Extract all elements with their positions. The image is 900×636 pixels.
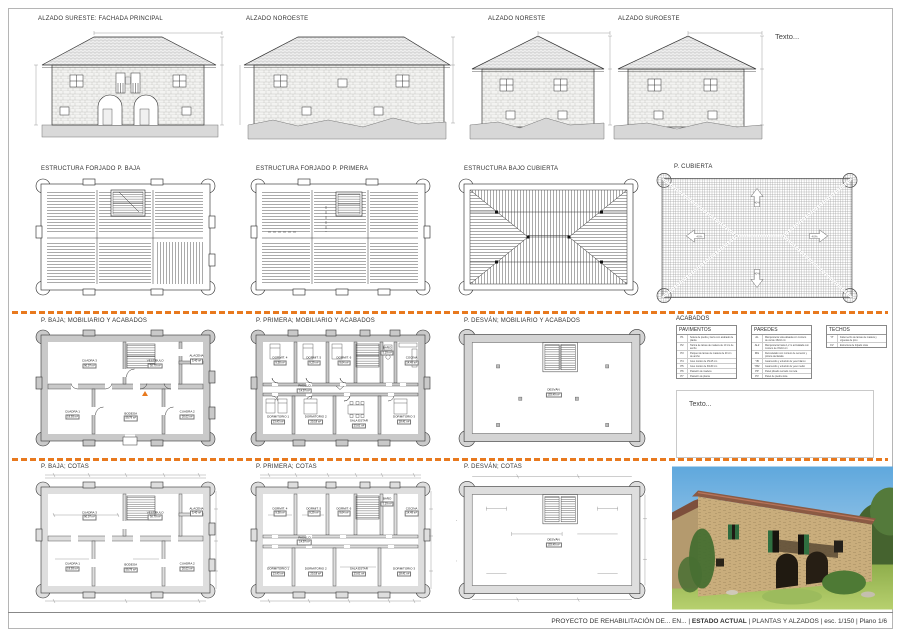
elevation-sureste-drawing — [30, 24, 228, 146]
phase-label: ESTADO ACTUAL — [692, 618, 747, 625]
room-label: ALACENA5,40 m² — [190, 507, 204, 516]
structure-title: ESTRUCTURA BAJO CUBIERTA — [464, 166, 646, 172]
title-block: PROYECTO DE REHABILITACIÓN DE... EN... |… — [8, 612, 893, 629]
plan-title: P. BAJA; COTAS — [41, 464, 221, 470]
room-label: BAÑO5,19 m² — [381, 498, 394, 507]
finish-code: AL — [752, 335, 763, 342]
plan-baja-cotas-drawing — [33, 472, 218, 604]
finish-description: Falso techo de lamas de madera y vigueta… — [838, 335, 886, 342]
site-photo — [672, 466, 893, 610]
finish-description: Gres rústico de 15x15 cm — [688, 359, 736, 363]
slope-label: 40% — [754, 201, 760, 205]
structure-bajo-cubierta-panel: ESTRUCTURA BAJO CUBIERTA — [456, 166, 646, 300]
finishes-table: PAREDESALMampostería vista alisada con m… — [751, 325, 812, 379]
finish-code: P7 — [677, 374, 688, 378]
notes-box: Texto... — [676, 390, 874, 458]
finish-code: P2 — [677, 343, 688, 350]
finish-code: YB2 — [752, 364, 763, 368]
finish-row: FVEstructura de forjado vista — [827, 343, 886, 347]
finish-row: ALMampostería vista alisada con mortero … — [752, 335, 811, 343]
room-label: PASILLO14,97 m² — [297, 385, 312, 394]
finishes-table-title: PAVIMENTOS — [677, 326, 736, 335]
room-label: CUADRA 220,02 m² — [180, 563, 195, 572]
finish-row: PVPanel de piedra vista — [752, 374, 811, 378]
plan-title: P. DESVÁN; MOBILIARIO Y ACABADOS — [464, 318, 651, 324]
room-label: BODEGA59,79 m² — [123, 412, 138, 421]
finishes-table: TECHOSYTFalso techo de lamas de madera y… — [826, 325, 887, 348]
finishes-table-title: PAREDES — [752, 326, 811, 335]
plan-primera-mobiliario-drawing — [248, 326, 433, 450]
finish-code: P4 — [677, 359, 688, 363]
finish-row: P1Solera de piedra y tierra con acabado … — [677, 335, 736, 343]
room-label: SALA ESTAR23,61 m² — [350, 568, 368, 577]
structure-forjado-baja-drawing — [33, 174, 218, 300]
notes-text-top: Texto... — [775, 32, 799, 41]
slope-label: 40% — [696, 234, 702, 238]
room-label: SALA ESTAR23,61 m² — [350, 419, 368, 428]
room-label: DORMITORIO 113,43 m² — [267, 416, 289, 425]
room-label: BODEGA59,79 m² — [123, 564, 138, 573]
finish-code: P1 — [677, 335, 688, 342]
finish-code: P6 — [677, 369, 688, 373]
structure-title: P. CUBIERTA — [674, 164, 862, 170]
scale-label: esc. 1/150 — [824, 618, 854, 625]
finish-code: MG — [752, 351, 763, 358]
orange-separator — [12, 311, 888, 314]
room-label: DORMIT. 69,64 m² — [336, 356, 351, 365]
room-label: DORMIT. 69,64 m² — [336, 507, 351, 516]
finish-description: Gres rústico de 30x30 cm — [688, 364, 736, 368]
plan-title: P. PRIMERA; MOBILIARIO Y ACABADOS — [256, 318, 436, 324]
room-label: DORMITORIO 318,41 m² — [393, 416, 415, 425]
structure-title: ESTRUCTURA FORJADO P. PRIMERA — [256, 166, 436, 172]
content-label: PLANTAS Y ALZADOS — [752, 618, 819, 625]
finish-row: P2Tarima de lamas de madera de 10 cm de … — [677, 343, 736, 351]
plan-baja-mobiliario-drawing — [33, 326, 218, 450]
finish-row: AL2Mampostería hasta 1,2 m acristalada c… — [752, 343, 811, 351]
finish-description: Panel plisado cerrado con tela — [763, 369, 811, 373]
elevation-noroeste-drawing — [238, 24, 456, 146]
finish-description: Parquet de lamas de madera de 20 cm de a… — [688, 351, 736, 358]
plan-title: P. PRIMERA; COTAS — [256, 464, 436, 470]
acabados-title: ACABADOS — [676, 316, 882, 322]
finish-tables: PAVIMENTOSP1Solera de piedra y tierra co… — [676, 325, 882, 379]
room-label: COCINA14,49 m² — [404, 507, 419, 516]
elevation-title: ALZADO SURESTE: FACHADA PRINCIPAL — [38, 16, 230, 22]
site-photo-image — [672, 466, 893, 610]
finish-description: Estructura de forjado vista — [838, 343, 886, 347]
room-label: VESTÍBULO30,79 m² — [147, 360, 164, 369]
sheet-number: Plano 1/6 — [860, 618, 887, 625]
finish-description: Tarima de lamas de madera de 10 cm de an… — [688, 343, 736, 350]
roof-plan-drawing: 40% 40% 40% 40% — [656, 172, 858, 304]
structure-bajo-cubierta-drawing — [456, 174, 641, 300]
finish-description: Remodelado con mortero de cemento y pint… — [763, 351, 811, 358]
finish-row: YTFalso techo de lamas de madera y vigue… — [827, 335, 886, 343]
finish-code: PP — [752, 369, 763, 373]
finish-code: YB — [752, 359, 763, 363]
plan-primera-cotas-panel: P. PRIMERA; COTAS — [248, 464, 436, 604]
notes-text-box: Texto... — [689, 401, 873, 408]
finish-code: P5 — [677, 364, 688, 368]
finishes-table-title: TECHOS — [827, 326, 886, 335]
finish-description: Pastelón de madera — [688, 369, 736, 373]
finish-description: Mampostería vista alisada con mortero de… — [763, 335, 811, 342]
finish-code: P3 — [677, 351, 688, 358]
room-label: DORMITORIO 113,43 m² — [267, 568, 289, 577]
finish-code: PV — [752, 374, 763, 378]
room-label: CUADRA 119,93 m² — [65, 411, 80, 420]
structure-title: ESTRUCTURA FORJADO P. BAJA — [41, 166, 221, 172]
slope-label: 40% — [754, 271, 760, 275]
room-label: PASILLO14,97 m² — [297, 536, 312, 545]
room-label: DESVÁN153,49 m² — [545, 388, 561, 397]
room-label: DORMITORIO 220,18 m² — [305, 568, 327, 577]
plan-baja-cotas-panel: P. BAJA; COTAS — [33, 464, 221, 604]
acabados-panel: ACABADOS PAVIMENTOSP1Solera de piedra y … — [676, 316, 882, 379]
finish-description: Pastelón de planta — [688, 374, 736, 378]
elevation-title: ALZADO SUROESTE — [618, 16, 772, 22]
room-label: DORMIT. 59,29 m² — [306, 356, 321, 365]
room-label: DORMITORIO 318,41 m² — [393, 568, 415, 577]
finish-description: Panel de piedra vista — [763, 374, 811, 378]
elevation-sureste-panel: ALZADO SURESTE: FACHADA PRINCIPAL — [30, 16, 230, 146]
structure-forjado-primera-drawing — [248, 174, 433, 300]
plan-desvan-mobiliario-panel: P. DESVÁN; MOBILIARIO Y ACABADOS DESVÁN1… — [456, 318, 651, 450]
room-label: DORMIT. 49,38 m² — [273, 356, 288, 365]
finish-description: Guarnecido y enlucido de yeso medio — [763, 364, 811, 368]
structure-forjado-baja-panel: ESTRUCTURA FORJADO P. BAJA — [33, 166, 221, 300]
finish-code: AL2 — [752, 343, 763, 350]
room-label: ALACENA5,40 m² — [190, 355, 204, 364]
structure-forjado-primera-panel: ESTRUCTURA FORJADO P. PRIMERA — [248, 166, 436, 300]
orange-separator — [12, 458, 888, 461]
finish-description: Solera de piedra y tierra con acabado de… — [688, 335, 736, 342]
room-label: CUADRA 220,02 m² — [180, 411, 195, 420]
room-label: DORMIT. 59,29 m² — [306, 507, 321, 516]
finish-description: Mampostería hasta 1,2 m acristalada con … — [763, 343, 811, 350]
plan-baja-mobiliario-panel: P. BAJA; MOBILIARIO Y ACABADOS — [33, 318, 221, 450]
slope-label: 40% — [812, 234, 818, 238]
plan-desvan-cotas-panel: P. DESVÁN; COTAS DESVÁN153,49 m² — [456, 464, 651, 604]
drawing-sheet: ALZADO SURESTE: FACHADA PRINCIPAL ALZADO… — [0, 0, 900, 636]
elevation-title: ALZADO NOROESTE — [246, 16, 458, 22]
elevation-noroeste-panel: ALZADO NOROESTE — [238, 16, 458, 146]
plan-primera-mobiliario-panel: P. PRIMERA; MOBILIARIO Y ACABADOS — [248, 318, 436, 450]
finish-row: P7Pastelón de planta — [677, 374, 736, 378]
room-label: CUADRA 390,07 m² — [82, 360, 97, 369]
room-label: BAÑO5,19 m² — [381, 346, 394, 355]
plan-title: P. BAJA; MOBILIARIO Y ACABADOS — [41, 318, 221, 324]
finishes-table: PAVIMENTOSP1Solera de piedra y tierra co… — [676, 325, 737, 379]
elevation-noreste-drawing — [458, 24, 618, 146]
finish-row: MGRemodelado con mortero de cemento y pi… — [752, 351, 811, 359]
room-label: DORMIT. 49,38 m² — [273, 507, 288, 516]
room-label: DORMITORIO 220,18 m² — [305, 416, 327, 425]
room-label: DESVÁN153,49 m² — [545, 539, 561, 548]
plan-title: P. DESVÁN; COTAS — [464, 464, 651, 470]
finish-description: Guarnecido y enlucido de yeso blanco — [763, 359, 811, 363]
elevation-noreste-panel: ALZADO NORESTE — [458, 16, 620, 146]
finish-code: YT — [827, 335, 838, 342]
room-label: VESTÍBULO30,79 m² — [147, 511, 164, 520]
project-title: PROYECTO DE REHABILITACIÓN DE... EN... — [551, 618, 686, 625]
elevation-suroeste-drawing — [602, 24, 770, 146]
finish-code: FV — [827, 343, 838, 347]
elevation-title: ALZADO NORESTE — [488, 16, 620, 22]
room-label: CUADRA 119,93 m² — [65, 563, 80, 572]
room-label: CUADRA 390,07 m² — [82, 511, 97, 520]
room-label: COCINA14,49 m² — [404, 356, 419, 365]
elevation-suroeste-panel: ALZADO SUROESTE — [602, 16, 772, 146]
plan-primera-cotas-drawing — [248, 472, 433, 604]
roof-plan-panel: P. CUBIERTA 40% 40% 40% 40% — [656, 164, 862, 304]
finish-row: P3Parquet de lamas de madera de 20 cm de… — [677, 351, 736, 359]
